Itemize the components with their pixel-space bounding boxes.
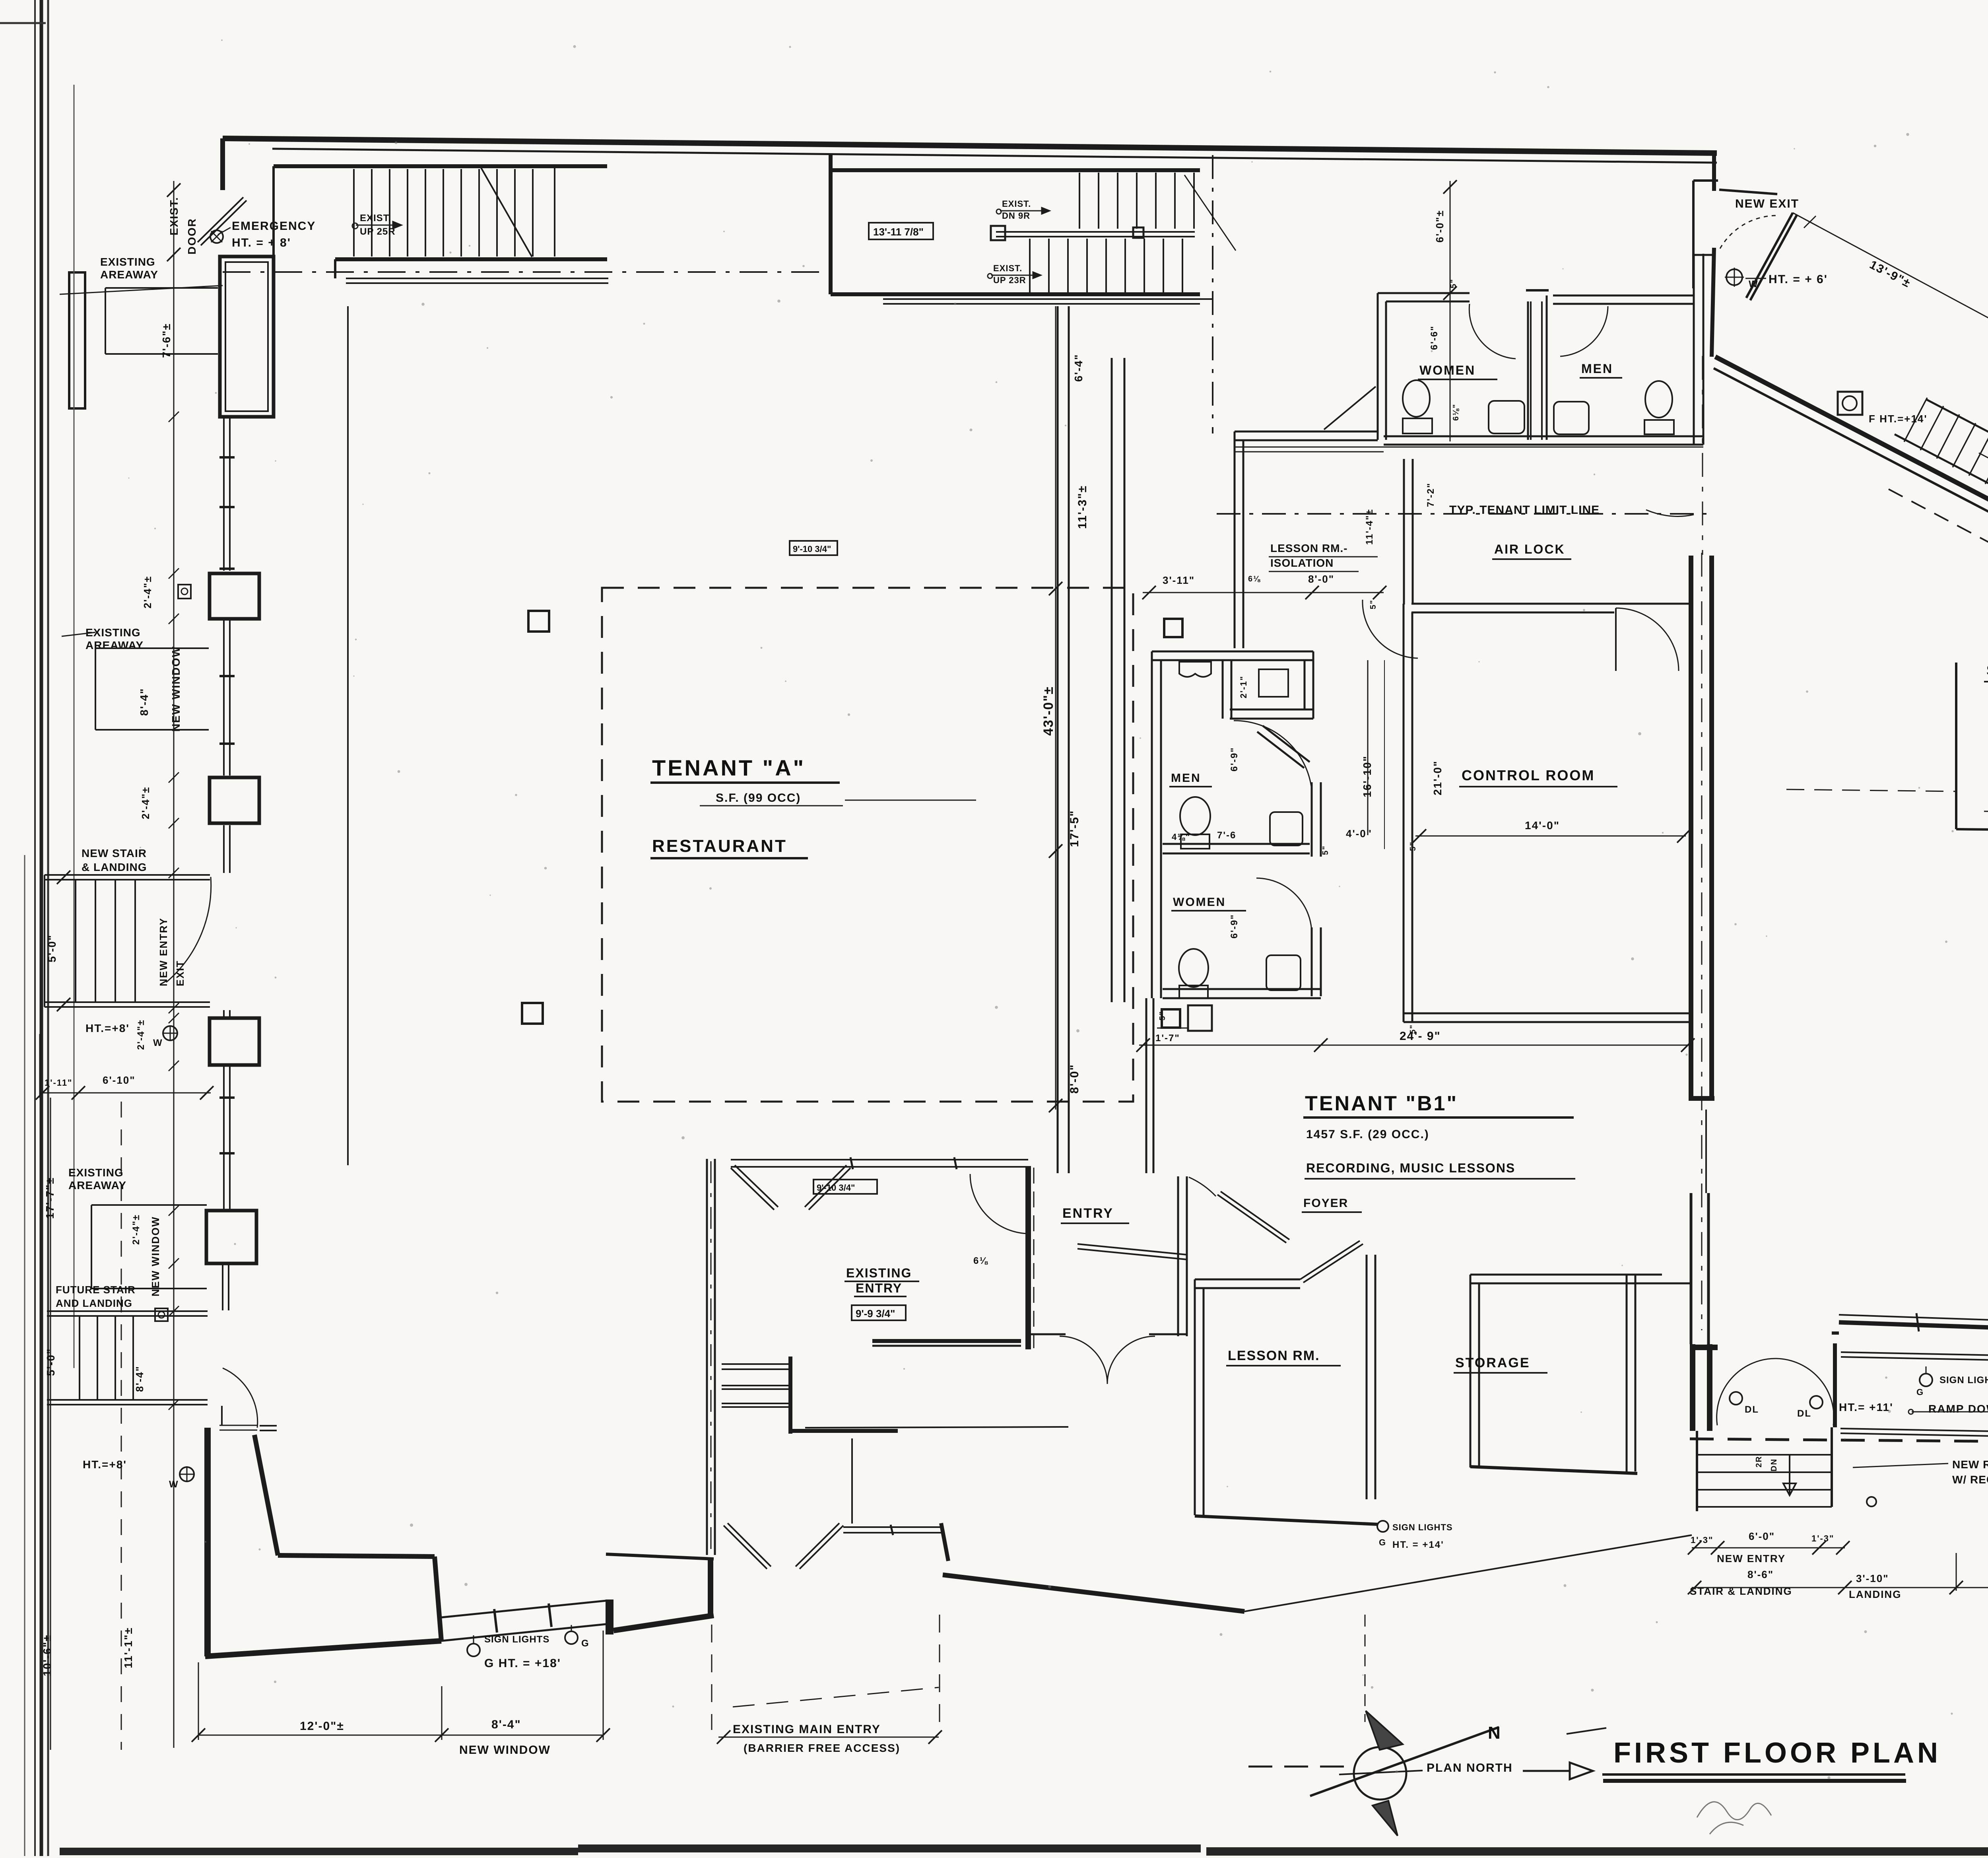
svg-text:NEW WINDOW: NEW WINDOW — [170, 646, 182, 732]
svg-text:CONTROL ROOM: CONTROL ROOM — [1462, 767, 1595, 783]
svg-text:DN: DN — [1770, 1458, 1778, 1471]
svg-text:G HT. = +18': G HT. = +18' — [484, 1657, 561, 1670]
svg-text:EXIST.: EXIST. — [360, 213, 391, 224]
svg-text:WOMEN: WOMEN — [1419, 363, 1475, 377]
svg-text:1457 S.F. (29 OCC.): 1457 S.F. (29 OCC.) — [1306, 1128, 1429, 1141]
svg-text:6'-4": 6'-4" — [1072, 354, 1085, 382]
svg-text:PLAN NORTH: PLAN NORTH — [1427, 1761, 1513, 1774]
svg-text:UP 23R: UP 23R — [993, 275, 1026, 285]
svg-text:DL: DL — [1745, 1404, 1759, 1415]
svg-text:WOMEN: WOMEN — [1173, 896, 1226, 909]
svg-text:13'-11 7/8": 13'-11 7/8" — [873, 226, 924, 238]
svg-text:AIR LOCK: AIR LOCK — [1494, 542, 1565, 556]
svg-text:W: W — [169, 1479, 179, 1490]
svg-text:HT. = + 8': HT. = + 8' — [232, 236, 291, 249]
svg-text:EXISTING: EXISTING — [100, 256, 155, 268]
svg-text:SIGN LIGHTS: SIGN LIGHTS — [484, 1634, 549, 1645]
svg-text:5": 5" — [1409, 1024, 1417, 1034]
svg-text:MEN: MEN — [1581, 361, 1613, 376]
svg-text:EXISTING: EXISTING — [846, 1266, 912, 1280]
svg-text:5'-0": 5'-0" — [46, 935, 58, 962]
svg-text:3'-11": 3'-11" — [1163, 574, 1195, 586]
svg-text:5": 5" — [1158, 1011, 1167, 1020]
svg-text:SIGN LIGHTS: SIGN LIGHTS — [1392, 1522, 1453, 1532]
svg-text:EXIST.: EXIST. — [1002, 199, 1031, 209]
svg-text:6'-9": 6'-9" — [1229, 747, 1240, 772]
svg-text:NEW STAIR: NEW STAIR — [82, 847, 147, 859]
svg-text:8'-0": 8'-0" — [1068, 1064, 1081, 1094]
svg-text:& LANDING: & LANDING — [82, 861, 147, 873]
svg-text:LANDING: LANDING — [1849, 1588, 1901, 1600]
svg-text:11'-3"±: 11'-3"± — [1076, 485, 1089, 529]
svg-text:AREAWAY: AREAWAY — [100, 268, 158, 281]
svg-text:6⅛": 6⅛" — [1452, 404, 1460, 421]
svg-text:W: W — [153, 1038, 163, 1048]
svg-text:6'-9": 6'-9" — [1229, 914, 1240, 939]
svg-text:LESSON RM.: LESSON RM. — [1228, 1348, 1320, 1363]
svg-text:HT.=+8': HT.=+8' — [85, 1022, 130, 1034]
svg-text:HT. = + 6': HT. = + 6' — [1769, 273, 1828, 286]
svg-text:5'-0": 5'-0" — [45, 1348, 57, 1376]
svg-text:TYP. TENANT LIMIT LINE: TYP. TENANT LIMIT LINE — [1449, 503, 1600, 517]
svg-text:G: G — [581, 1638, 590, 1649]
svg-text:SIGN LIGHTS: SIGN LIGHTS — [1939, 1375, 1988, 1386]
svg-text:UP 25R: UP 25R — [360, 226, 396, 237]
svg-text:NEW WINDOW: NEW WINDOW — [149, 1216, 161, 1296]
svg-text:5": 5" — [1321, 845, 1330, 855]
svg-text:EXIST.: EXIST. — [993, 263, 1022, 273]
svg-text:W: W — [1749, 279, 1759, 290]
svg-text:6⅛: 6⅛ — [1248, 575, 1261, 583]
svg-text:10'-6"±: 10'-6"± — [41, 1634, 53, 1676]
svg-text:8'-4": 8'-4" — [134, 1366, 146, 1392]
svg-text:2'-4"±: 2'-4"± — [131, 1214, 142, 1245]
svg-text:AND LANDING: AND LANDING — [56, 1297, 132, 1309]
svg-text:ENTRY: ENTRY — [856, 1281, 902, 1295]
svg-text:6⅛: 6⅛ — [973, 1256, 988, 1266]
svg-text:21'-0": 21'-0" — [1431, 760, 1444, 795]
svg-text:7'-6"±: 7'-6"± — [160, 323, 173, 358]
svg-text:FOYER: FOYER — [1303, 1197, 1348, 1210]
svg-text:EXISTING: EXISTING — [68, 1166, 124, 1179]
svg-text:HT.= +11': HT.= +11' — [1839, 1401, 1893, 1413]
svg-text:NEW EXIT: NEW EXIT — [1735, 197, 1799, 210]
svg-text:STORAGE: STORAGE — [1455, 1355, 1530, 1370]
svg-text:DL: DL — [1797, 1408, 1811, 1419]
svg-text:9'-9 3/4": 9'-9 3/4" — [856, 1308, 895, 1320]
svg-text:3'-10": 3'-10" — [1856, 1572, 1889, 1584]
svg-text:ENTRY: ENTRY — [1062, 1206, 1114, 1221]
svg-text:LESSON RM.-: LESSON RM.- — [1270, 542, 1348, 554]
svg-text:RAMP DOWN 1:12: RAMP DOWN 1:12 — [1928, 1403, 1988, 1415]
svg-text:MEN: MEN — [1171, 772, 1201, 785]
svg-text:14'-0": 14'-0" — [1525, 819, 1560, 832]
svg-text:AREAWAY: AREAWAY — [85, 639, 144, 651]
svg-text:RESTAURANT: RESTAURANT — [652, 836, 787, 856]
svg-text:5": 5" — [1369, 599, 1378, 609]
svg-text:2'-4"±: 2'-4"± — [142, 576, 153, 608]
svg-text:2R: 2R — [1755, 1456, 1763, 1467]
svg-text:N: N — [1488, 1723, 1501, 1743]
svg-text:7'-6: 7'-6 — [1217, 830, 1236, 841]
svg-text:ISOLATION: ISOLATION — [1270, 557, 1334, 569]
svg-text:8'-6": 8'-6" — [1747, 1568, 1774, 1580]
svg-text:9'-10 3/4": 9'-10 3/4" — [793, 544, 831, 554]
svg-text:1'-7": 1'-7" — [1155, 1033, 1180, 1044]
svg-text:8'-0": 8'-0" — [1308, 573, 1334, 585]
svg-text:EXISTING MAIN ENTRY: EXISTING MAIN ENTRY — [733, 1723, 881, 1736]
svg-text:DOOR: DOOR — [186, 218, 198, 255]
svg-text:DN 9R: DN 9R — [1002, 211, 1030, 221]
svg-text:NEW ROOF CANOPY: NEW ROOF CANOPY — [1952, 1458, 1988, 1471]
svg-text:FUTURE STAIR: FUTURE STAIR — [56, 1284, 136, 1296]
svg-text:G: G — [1916, 1387, 1924, 1397]
svg-text:12'-0"±: 12'-0"± — [300, 1720, 344, 1733]
svg-text:1'-3": 1'-3" — [1691, 1535, 1713, 1545]
svg-text:HT. = +14': HT. = +14' — [1392, 1539, 1444, 1550]
svg-text:2'-4"±: 2'-4"± — [136, 1019, 146, 1050]
svg-text:1'-3": 1'-3" — [1811, 1533, 1834, 1543]
svg-text:TENANT "B1": TENANT "B1" — [1305, 1092, 1458, 1115]
svg-text:11'-1"±: 11'-1"± — [122, 1627, 134, 1668]
svg-text:6'-6": 6'-6" — [1429, 325, 1440, 350]
svg-text:9'-10 3/4": 9'-10 3/4" — [817, 1183, 855, 1193]
svg-text:5": 5" — [1449, 278, 1458, 288]
svg-text:FIRST FLOOR PLAN: FIRST FLOOR PLAN — [1613, 1737, 1941, 1769]
svg-text:NEW ENTRY: NEW ENTRY — [1717, 1553, 1786, 1565]
svg-text:17'-5": 17'-5" — [1068, 810, 1081, 847]
svg-text:8'-4": 8'-4" — [491, 1718, 521, 1731]
svg-text:AREAWAY: AREAWAY — [68, 1179, 126, 1191]
svg-text:2'-1": 2'-1" — [1239, 676, 1248, 698]
svg-text:NEW ENTRY: NEW ENTRY — [157, 917, 169, 986]
svg-text:43'-0"±: 43'-0"± — [1041, 686, 1056, 736]
svg-text:(BARRIER FREE ACCESS): (BARRIER FREE ACCESS) — [744, 1742, 900, 1754]
svg-text:6'-0": 6'-0" — [1749, 1530, 1775, 1542]
svg-text:NEW WINDOW: NEW WINDOW — [459, 1743, 551, 1757]
svg-text:8'-4": 8'-4" — [138, 688, 150, 716]
svg-text:6'-10": 6'-10" — [103, 1074, 136, 1086]
svg-text:RECORDING, MUSIC LESSONS: RECORDING, MUSIC LESSONS — [1306, 1161, 1515, 1175]
svg-text:STAGE AREA: STAGE AREA — [1986, 662, 1988, 678]
svg-text:7'-2": 7'-2" — [1425, 482, 1436, 507]
svg-text:TENANT "A": TENANT "A" — [652, 755, 806, 780]
svg-text:24'- 9": 24'- 9" — [1400, 1030, 1441, 1043]
svg-text:2'-4"±: 2'-4"± — [140, 787, 151, 819]
svg-text:EXIT: EXIT — [174, 960, 186, 986]
svg-text:W/ RECESSED LIGHTS: W/ RECESSED LIGHTS — [1952, 1473, 1988, 1486]
svg-text:S.F. (99 OCC): S.F. (99 OCC) — [716, 791, 801, 805]
svg-text:4⅛": 4⅛" — [1172, 832, 1190, 842]
svg-text:G: G — [1379, 1537, 1386, 1547]
svg-text:HT.=+8': HT.=+8' — [83, 1458, 127, 1471]
svg-text:6'-0"±: 6'-0"± — [1434, 210, 1446, 243]
svg-text:F HT.=+14': F HT.=+14' — [1869, 413, 1928, 425]
